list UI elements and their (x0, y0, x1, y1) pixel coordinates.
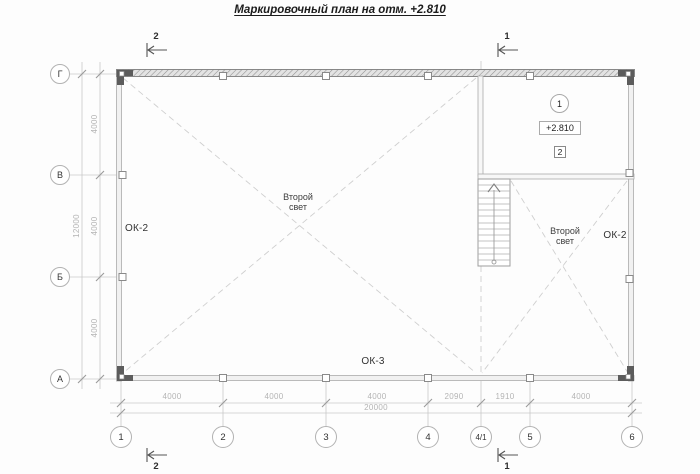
drawing-title: Маркировочный план на отм. +2.810 (140, 4, 540, 16)
void-label-right: Второй свет (529, 226, 601, 246)
section-number-bottom-right: 1 (500, 461, 514, 472)
void-label-right-line1: Второй (529, 226, 601, 236)
window-label-ok3-bottom: ОК-3 (351, 356, 395, 367)
dim-bottom-segment-4: 2090 (432, 392, 476, 402)
axis-circle-col-2: 2 (212, 426, 234, 448)
dim-bottom-segment-2: 4000 (252, 392, 296, 402)
dim-bottom-total: 20000 (354, 403, 398, 413)
dim-bottom-segment-1: 4000 (150, 392, 194, 402)
top-wall-hatched (117, 70, 635, 77)
axis-circle-col-3: 3 (315, 426, 337, 448)
section-number-top-left: 2 (149, 31, 163, 42)
axis-circle-row-b: Б (50, 267, 70, 287)
axis-circle-col-4-1: 4/1 (470, 426, 492, 448)
stair (478, 179, 510, 266)
axis-circle-col-5: 5 (519, 426, 541, 448)
room-marker-circle: 1 (550, 94, 569, 113)
section-number-bottom-left: 2 (149, 461, 163, 472)
void-label-left-line2: свет (262, 202, 334, 212)
section-number-top-right: 1 (500, 31, 514, 42)
drawing-canvas: Маркировочный план на отм. +2.810 Г В Б … (0, 0, 700, 474)
axis-circle-col-6: 6 (621, 426, 643, 448)
axis-circle-row-a: А (50, 369, 70, 389)
window-label-ok2-left: ОК-2 (125, 223, 148, 234)
dim-bottom-segment-5: 1910 (483, 392, 527, 402)
room-marker-square: 2 (554, 146, 566, 158)
axis-circle-row-g: Г (50, 64, 70, 84)
dim-bottom-segment-6: 4000 (559, 392, 603, 402)
void-label-left: Второй свет (262, 192, 334, 212)
dim-bottom-segment-3: 4000 (355, 392, 399, 402)
void-label-left-line1: Второй (262, 192, 334, 202)
dim-left-segment-3: 4000 (90, 306, 100, 350)
dim-left-segment-1: 4000 (90, 102, 100, 146)
axis-circle-row-v: В (50, 165, 70, 185)
axis-circle-col-4: 4 (417, 426, 439, 448)
void-cross-left (123, 78, 476, 373)
axis-circle-col-1: 1 (110, 426, 132, 448)
dim-left-total: 12000 (72, 204, 82, 248)
dim-left-segment-2: 4000 (90, 204, 100, 248)
room-marker-elevation: +2.810 (539, 121, 581, 135)
void-label-right-line2: свет (529, 236, 601, 246)
